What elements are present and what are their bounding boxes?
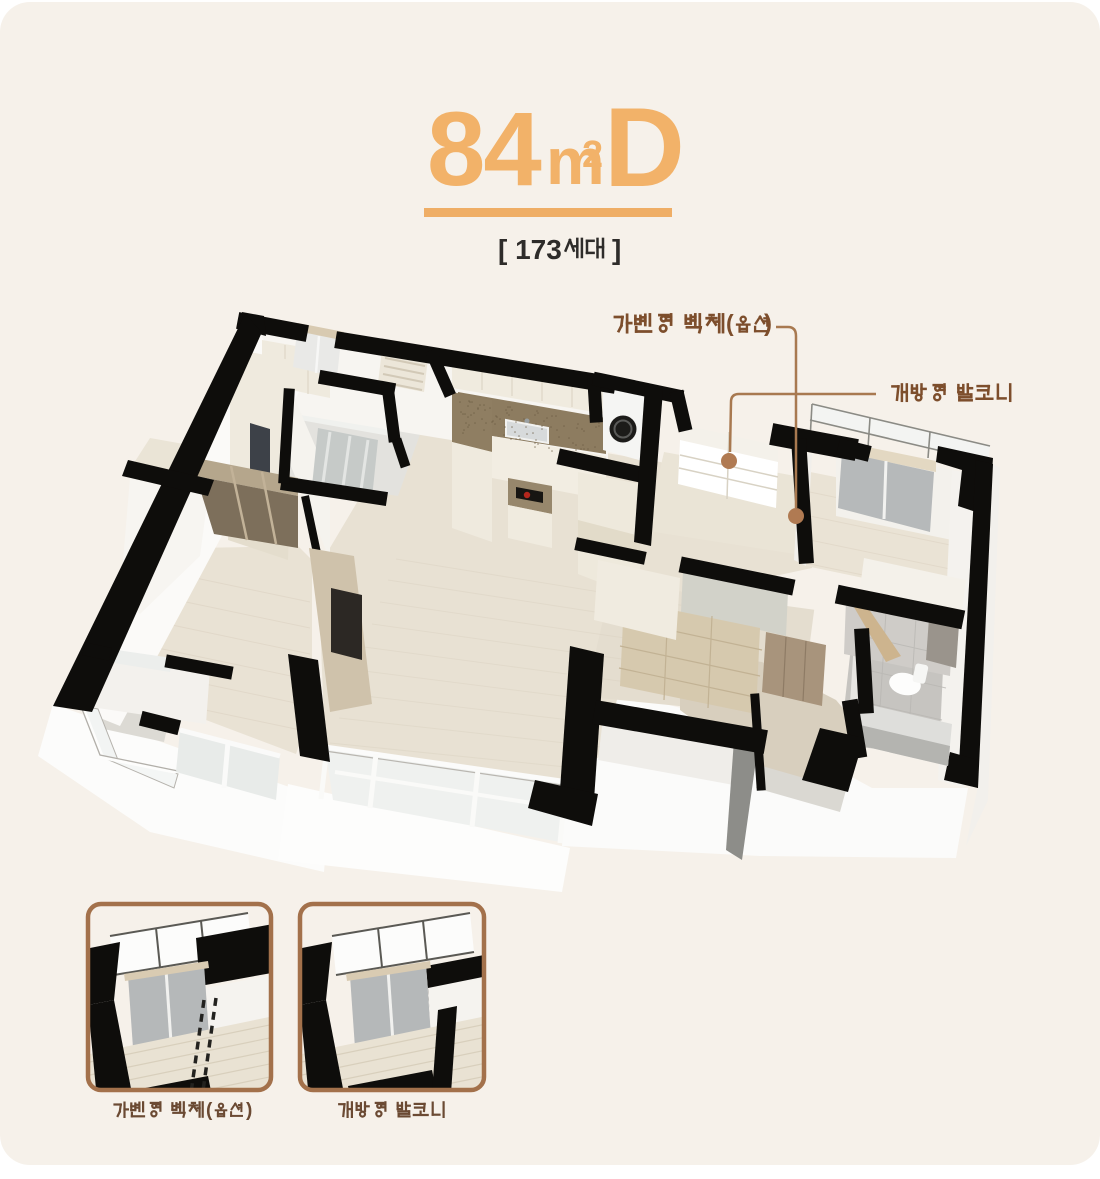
svg-text:): ) [764, 310, 772, 337]
svg-text:D: D [604, 85, 685, 210]
svg-text:2: 2 [582, 134, 603, 176]
svg-text:[ 173: [ 173 [498, 234, 562, 265]
svg-text:(: ( [206, 1100, 213, 1121]
svg-text:): ) [246, 1100, 252, 1121]
svg-text:(: ( [726, 310, 734, 336]
svg-text:]: ] [612, 234, 621, 265]
svg-text:84: 84 [427, 91, 541, 208]
